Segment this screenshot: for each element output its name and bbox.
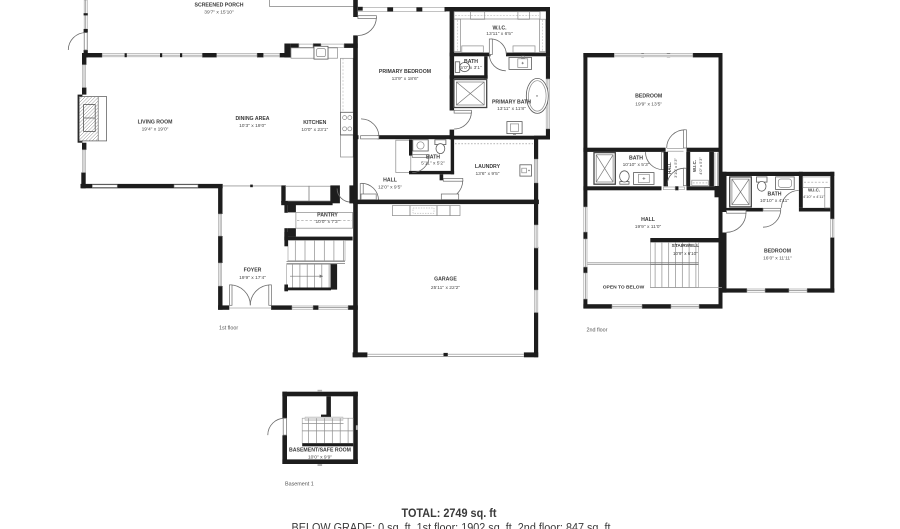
svg-text:19'4" x 19'0": 19'4" x 19'0" (142, 127, 169, 133)
svg-text:10'0" x 9'9": 10'0" x 9'9" (308, 455, 332, 461)
svg-text:OPEN TO BELOW: OPEN TO BELOW (603, 284, 645, 290)
svg-text:STAIRWELL: STAIRWELL (672, 243, 700, 249)
svg-text:5'0" x 3'1": 5'0" x 3'1" (460, 65, 482, 71)
svg-text:10'9" x 6'10": 10'9" x 6'10" (673, 251, 698, 256)
svg-text:BATH: BATH (464, 59, 478, 65)
svg-text:W.I.C.: W.I.C. (808, 188, 820, 193)
svg-text:10'3" x 19'0": 10'3" x 19'0" (239, 123, 266, 129)
svg-text:19'9" x 17'4": 19'9" x 17'4" (239, 275, 266, 281)
svg-text:KITCHEN: KITCHEN (303, 120, 326, 126)
svg-text:3'10" x 5'3": 3'10" x 5'3" (673, 158, 678, 178)
svg-text:5'11" x 5'2": 5'11" x 5'2" (421, 160, 445, 166)
svg-text:BEDROOM: BEDROOM (764, 249, 791, 255)
svg-text:BATH: BATH (629, 156, 643, 162)
svg-text:19'9" x 11'0": 19'9" x 11'0" (635, 224, 662, 230)
svg-text:DINING AREA: DINING AREA (235, 116, 269, 122)
svg-text:13'11" x 11'8": 13'11" x 11'8" (497, 106, 526, 112)
svg-text:W.I.C.: W.I.C. (492, 25, 507, 31)
svg-text:GARAGE: GARAGE (434, 277, 457, 283)
svg-text:BATH: BATH (767, 191, 781, 197)
svg-text:12'0" x 9'5": 12'0" x 9'5" (378, 184, 402, 190)
svg-text:W.I.C.: W.I.C. (692, 160, 697, 172)
svg-text:BASEMENT/SAFE ROOM: BASEMENT/SAFE ROOM (289, 448, 351, 454)
svg-text:FOYER: FOYER (244, 268, 262, 274)
svg-text:HALL: HALL (641, 217, 656, 223)
svg-text:4'10" x 4'11": 4'10" x 4'11" (803, 194, 825, 199)
svg-text:SCREENED PORCH: SCREENED PORCH (194, 3, 243, 9)
svg-text:PRIMARY BEDROOM: PRIMARY BEDROOM (379, 69, 431, 75)
svg-text:10'0" x 23'1": 10'0" x 23'1" (301, 127, 328, 133)
svg-text:13'9" x 18'6": 13'9" x 18'6" (392, 76, 419, 82)
svg-text:HALL: HALL (667, 162, 672, 174)
svg-text:Basement 1: Basement 1 (285, 482, 314, 488)
svg-text:LIVING ROOM: LIVING ROOM (138, 120, 173, 126)
svg-text:19'9" x 13'5": 19'9" x 13'5" (635, 101, 662, 107)
svg-text:2nd floor: 2nd floor (587, 328, 608, 334)
svg-text:LAUNDRY: LAUNDRY (475, 164, 501, 170)
svg-text:HALL: HALL (383, 178, 398, 184)
svg-text:BELOW GRADE: 0 sq. ft, 1st flo: BELOW GRADE: 0 sq. ft, 1st floor: 1902 s… (292, 523, 612, 529)
svg-text:10'10" x 5'3": 10'10" x 5'3" (623, 162, 650, 168)
svg-text:TOTAL: 2749 sq. ft: TOTAL: 2749 sq. ft (402, 508, 497, 520)
svg-text:4'0" x 5'3": 4'0" x 5'3" (698, 157, 703, 175)
svg-text:39'7" x 15'10": 39'7" x 15'10" (204, 9, 234, 15)
svg-text:BATH: BATH (426, 154, 440, 160)
svg-text:10'0" x 7'2": 10'0" x 7'2" (315, 219, 339, 225)
svg-text:13'6" x 9'5": 13'6" x 9'5" (475, 171, 499, 177)
svg-text:13'11" x 6'5": 13'11" x 6'5" (486, 31, 513, 37)
svg-text:1st floor: 1st floor (219, 326, 238, 332)
svg-text:25'11" x 22'2": 25'11" x 22'2" (431, 285, 460, 291)
svg-text:16'0" x 11'11": 16'0" x 11'11" (763, 256, 792, 262)
svg-text:PANTRY: PANTRY (317, 213, 338, 219)
svg-text:BEDROOM: BEDROOM (635, 93, 662, 99)
svg-text:PRIMARY BATH: PRIMARY BATH (492, 99, 531, 105)
svg-text:10'10" x 4'11": 10'10" x 4'11" (760, 198, 789, 204)
